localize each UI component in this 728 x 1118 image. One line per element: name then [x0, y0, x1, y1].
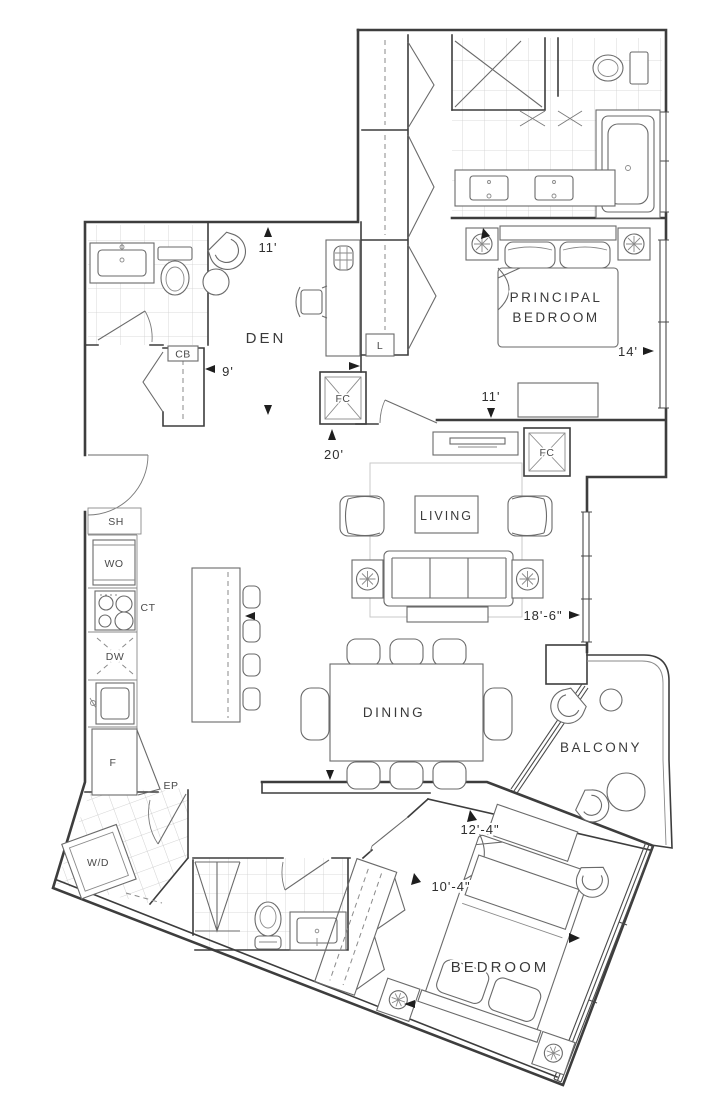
floor-plan-drawing: L PRINCIPAL BEDROOM [0, 0, 728, 1118]
principal-nightstand-right [618, 228, 650, 260]
armchair-right [508, 496, 552, 536]
principal-bedroom-label-1: PRINCIPAL [510, 290, 603, 305]
dining-label: DINING [363, 705, 425, 720]
dim-living-length: 18'-6" [523, 608, 562, 623]
dim-bedroom-width: 10'-4" [431, 879, 470, 894]
living-window [581, 512, 592, 642]
sofa-bench [407, 607, 488, 622]
side-table-left [352, 560, 383, 598]
bifold-doors [408, 42, 436, 350]
fridge: F [92, 729, 160, 795]
coffee-table: LIVING [415, 496, 478, 533]
dim-den-width: 11' [259, 240, 278, 255]
arrow-down-principal [487, 408, 495, 418]
arrow-down-den [264, 405, 272, 415]
washer-dryer-label: W/D [87, 857, 109, 869]
wall-oven: WO [93, 540, 135, 585]
dishwasher-label: DW [106, 651, 125, 663]
fan-coil-2: FC [524, 428, 570, 476]
side-table-right [512, 560, 543, 598]
living-room: LIVING [340, 432, 552, 622]
principal-bed [498, 226, 618, 347]
dim-principal-width: 11' [482, 389, 501, 404]
fan-coil-1-label: FC [336, 393, 351, 405]
arrow-upleft-bedroom-width [411, 873, 421, 885]
arrow-down-dining [326, 770, 334, 780]
dining-chairs-bottom [347, 762, 466, 789]
bar-stool [243, 688, 260, 710]
dining-room: DINING [301, 639, 512, 789]
arrow-up-den [264, 227, 272, 237]
fridge-label: F [110, 757, 117, 769]
armchair-left [340, 496, 384, 536]
arrow-right-living [569, 611, 580, 619]
closet-column: L [366, 40, 436, 356]
principal-bench [518, 383, 598, 417]
den-side-table [203, 269, 229, 295]
sofa [384, 551, 513, 606]
wall-oven-label: WO [104, 558, 123, 570]
principal-bedroom: PRINCIPAL BEDROOM [380, 226, 650, 423]
dishwasher: DW [97, 638, 133, 674]
balcony-table-top [600, 689, 622, 711]
dining-chair [301, 688, 329, 740]
arrow-right-bedroom [569, 933, 580, 943]
den: DEN [203, 229, 360, 356]
dining-chair [484, 688, 512, 740]
arrow-right-linen [349, 362, 360, 370]
kitchen-sink [90, 683, 134, 724]
balcony-chair-top [544, 684, 590, 730]
principal-door [380, 400, 437, 423]
arrow-left-den [205, 365, 215, 373]
tv-console [433, 432, 518, 455]
arrow-up-gallery [328, 429, 336, 440]
arrow-left-island [245, 612, 255, 620]
entry-door-swing [88, 455, 148, 515]
bar-stool [243, 586, 260, 608]
coat-closet-bifold [143, 352, 163, 412]
den-desk-chair [296, 286, 327, 318]
dining-chairs-top [347, 639, 466, 666]
cooktop: CT [95, 591, 156, 630]
dim-principal-depth: 14' [618, 344, 638, 359]
dim-den-depth: 9' [222, 364, 234, 379]
second-bath-toilet [255, 902, 281, 949]
fan-coil-1: FC [320, 372, 366, 424]
principal-bedroom-label-2: BEDROOM [512, 310, 599, 325]
bedroom-chair [576, 867, 609, 897]
second-bath-vanity [290, 912, 346, 950]
coat-closet-label: CB [175, 349, 191, 361]
bedroom-entry-jambs [363, 799, 428, 858]
kitchen: WO CT DW F [88, 535, 260, 795]
balcony-table-bottom [607, 773, 645, 811]
principal-nightstand-left [466, 228, 498, 260]
closet-column-walls [362, 35, 408, 355]
coat-closet: CB [143, 346, 204, 426]
linen-closet-label: L [377, 340, 383, 352]
bedroom-label: BEDROOM [451, 959, 550, 976]
cooktop-label: CT [141, 602, 156, 614]
bar-stool [243, 654, 260, 676]
main-bath-vanity [90, 243, 154, 283]
bedroom-closet-bifold [356, 878, 413, 996]
ensuite-double-vanity [455, 170, 615, 206]
den-label: DEN [246, 330, 287, 347]
electrical-panel-label: EP [163, 780, 178, 792]
dim-gallery: 20' [324, 447, 344, 462]
fan-coil-2-label: FC [540, 447, 555, 459]
principal-bedroom-window [658, 240, 669, 408]
balcony-label: BALCONY [560, 740, 642, 755]
bedroom-bed [418, 833, 595, 1042]
shelf-label: SH [108, 516, 124, 528]
dim-bedroom-length: 12'-4" [460, 822, 499, 837]
kitchen-island [192, 568, 260, 722]
balcony-wall-stub [546, 645, 587, 684]
arrow-right-principal [643, 347, 654, 355]
floor-plan-page: L PRINCIPAL BEDROOM [0, 0, 728, 1118]
bedroom-door [370, 817, 408, 852]
bar-stool [243, 620, 260, 642]
den-desk [326, 240, 360, 356]
main-bath-toilet [158, 247, 192, 295]
entry: SH [88, 455, 148, 534]
living-label: LIVING [420, 509, 473, 523]
arrow-upleft-bedroom-length [467, 810, 477, 822]
